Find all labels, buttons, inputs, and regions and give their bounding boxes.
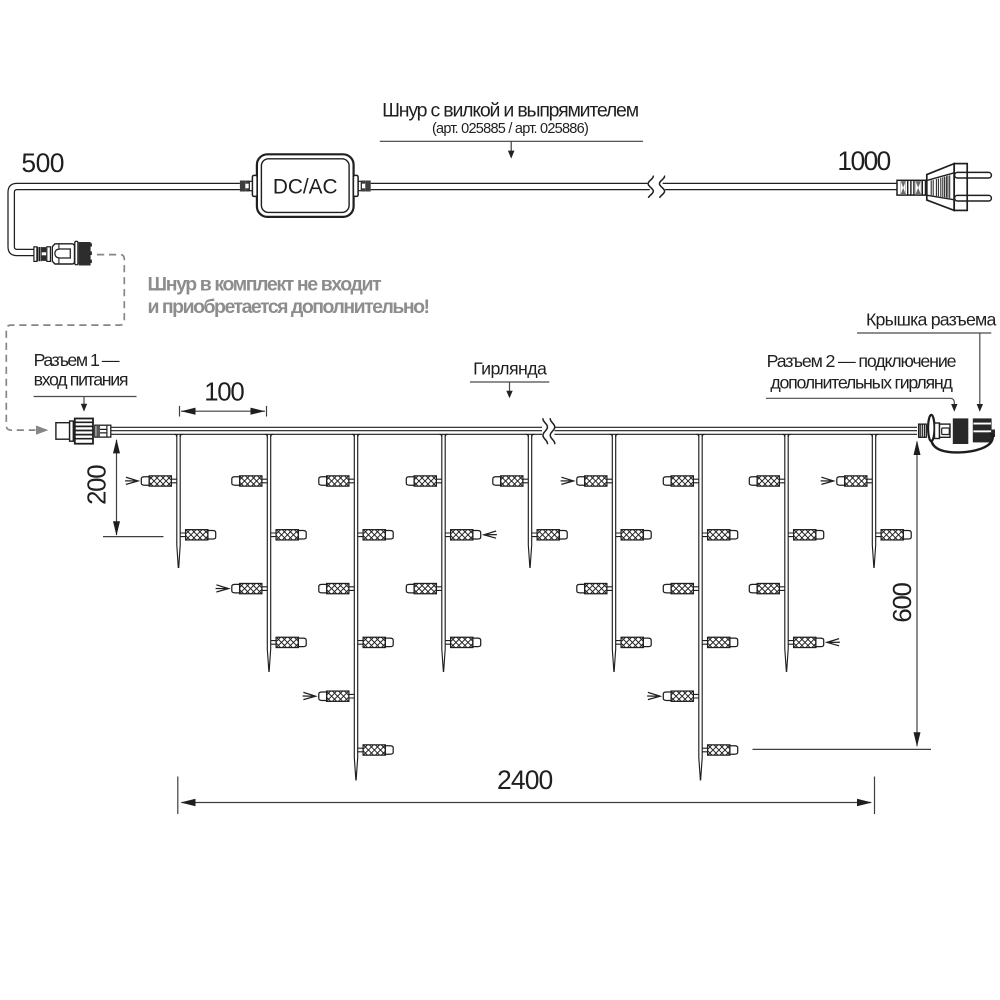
svg-text:вход питания: вход питания — [34, 370, 128, 390]
svg-text:600: 600 — [889, 582, 917, 622]
svg-text:Разъем 2 — подключение: Разъем 2 — подключение — [767, 351, 957, 371]
svg-text:дополнительных гирлянд: дополнительных гирлянд — [770, 373, 953, 393]
svg-text:Гирлянда: Гирлянда — [473, 359, 547, 379]
svg-text:Шнур с вилкой и выпрямителем: Шнур с вилкой и выпрямителем — [382, 100, 639, 122]
svg-text:Шнур в комплект не входит: Шнур в комплект не входит — [148, 274, 382, 296]
svg-text:и приобретается дополнительно!: и приобретается дополнительно! — [148, 296, 429, 318]
svg-text:100: 100 — [204, 379, 244, 407]
svg-text:(арт. 025885 / арт. 025886): (арт. 025885 / арт. 025886) — [432, 121, 588, 137]
svg-text:2400: 2400 — [497, 765, 553, 795]
svg-text:Крышка разъема: Крышка разъема — [866, 310, 996, 330]
svg-text:1000: 1000 — [837, 146, 890, 176]
svg-text:Разъем 1 —: Разъем 1 — — [34, 350, 120, 370]
svg-text:500: 500 — [21, 148, 64, 178]
svg-text:DC/AC: DC/AC — [273, 175, 338, 198]
svg-text:200: 200 — [84, 465, 112, 505]
